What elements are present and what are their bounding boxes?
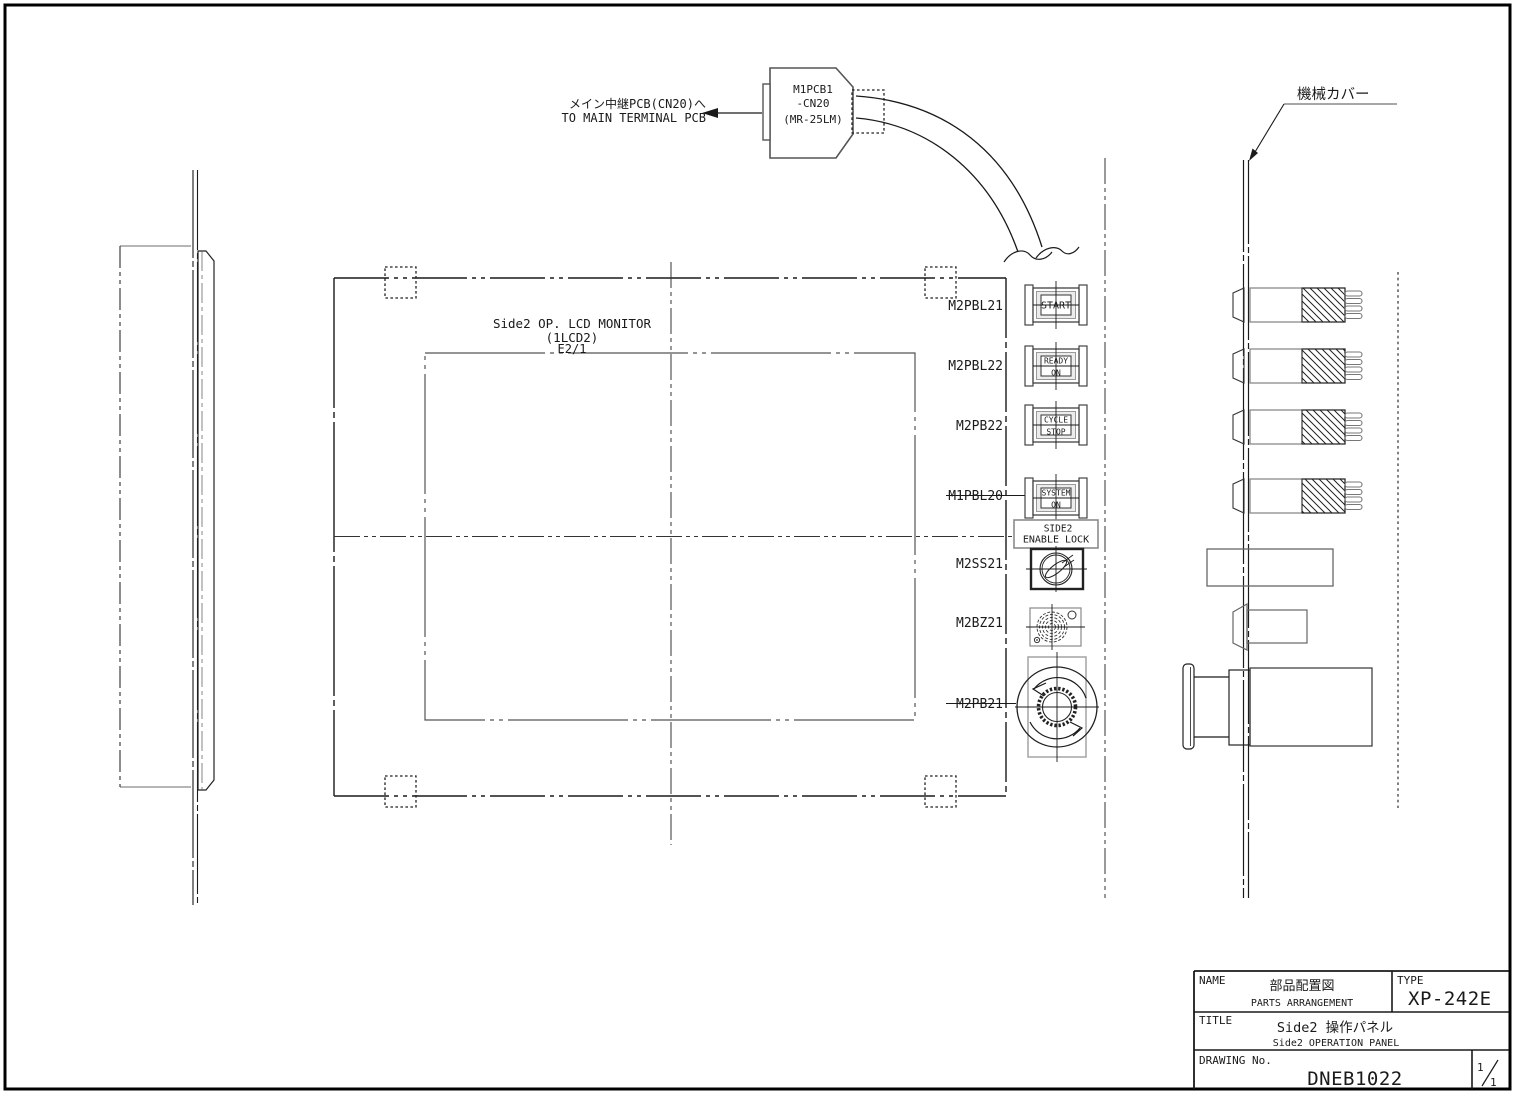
cable-line [856, 118, 1018, 252]
machine-cover-annotation: 機械カバー [1249, 86, 1397, 161]
ref-label-m2pbl22: M2PBL22 [948, 359, 1003, 374]
buzzer [1026, 604, 1085, 650]
mounting-hole [925, 267, 956, 298]
connector-label-1: M1PCB1 [793, 83, 833, 96]
wire-pin [1345, 367, 1362, 372]
button-lens-text: ON [1051, 501, 1061, 510]
sheet-total: 1 [1490, 1076, 1497, 1089]
button-lens-text: CYCLE [1044, 416, 1068, 425]
pushbutton-side-view [1233, 479, 1362, 513]
parts-arrangement-drawing: M1PCB1 -CN20 (MR-25LM) メイン中継PCB(CN20)へ T… [0, 0, 1515, 1094]
terminal-hatch [1302, 349, 1345, 383]
monitor-bezel-side [198, 251, 214, 790]
wire-pin [1345, 497, 1362, 502]
ref-label-m2pbl21: M2PBL21 [948, 299, 1003, 314]
title-label: TITLE [1199, 1014, 1232, 1027]
to-main-pcb-annotation: メイン中継PCB(CN20)へ TO MAIN TERMINAL PCB [562, 96, 763, 125]
plate-text-1: SIDE2 [1044, 524, 1073, 535]
drawing-no-label: DRAWING No. [1199, 1054, 1272, 1067]
title-block: NAME 部品配置図 PARTS ARRANGEMENT TYPE XP-242… [1194, 971, 1509, 1090]
wire-pin [1345, 505, 1362, 510]
type-value: XP-242E [1408, 988, 1492, 1010]
mounting-hole [385, 267, 416, 298]
terminal-hatch [1302, 410, 1345, 444]
button-system-on: SYSTEM ON [1025, 474, 1087, 522]
emergency-stop-button [1015, 652, 1099, 762]
wire-pin [1345, 299, 1362, 304]
ref-label-m1pbl20: M1PBL20 [948, 489, 1003, 504]
wire-pin [1345, 482, 1362, 487]
title-japanese: Side2 操作パネル [1277, 1020, 1393, 1036]
leader-line [1252, 104, 1284, 157]
wire-pin [1345, 428, 1362, 433]
wire-pin [1345, 314, 1362, 319]
connector-tab [763, 84, 770, 140]
ref-label-m2pb22: M2PB22 [956, 419, 1003, 434]
panel-front-view: Side2 OP. LCD MONITOR (1LCD2) E2/1 [334, 262, 1014, 845]
connector-label-3: (MR-25LM) [783, 113, 843, 126]
control-column: M2PBL21 M2PBL22 M2PB22 M1PBL20 M2SS21 M2… [946, 281, 1099, 762]
button-ready-on: READY ON [1025, 342, 1087, 390]
note-japanese: メイン中継PCB(CN20)へ [569, 96, 706, 111]
wire-pin [1345, 421, 1362, 426]
button-lens-text: READY [1044, 357, 1068, 366]
wire-pin [1345, 436, 1362, 441]
wire-pin [1345, 291, 1362, 296]
button-lens-text: ON [1051, 369, 1061, 378]
connector-label-2: -CN20 [796, 97, 829, 110]
ref-label-m2bz21: M2BZ21 [956, 616, 1003, 631]
note-english: TO MAIN TERMINAL PCB [562, 111, 707, 125]
lcd-label-3: E2/1 [558, 342, 587, 356]
estop-mushroom-head [1183, 664, 1194, 749]
cable-break-mark [1004, 251, 1052, 262]
type-label: TYPE [1397, 974, 1424, 987]
estop-body [1250, 668, 1372, 746]
name-japanese: 部品配置図 [1269, 979, 1334, 994]
lcd-label-1: Side2 OP. LCD MONITOR [493, 316, 652, 331]
name-english: PARTS ARRANGEMENT [1251, 998, 1353, 1009]
machine-cover-label: 機械カバー [1297, 86, 1370, 103]
left-side-view [120, 170, 214, 905]
ref-label-m2ss21: M2SS21 [956, 557, 1003, 572]
pushbutton-side-view [1233, 410, 1362, 444]
enable-lock-plate: SIDE2 ENABLE LOCK [1014, 520, 1098, 548]
terminal-hatch [1302, 288, 1345, 322]
button-cycle-stop: CYCLE STOP [1025, 401, 1087, 449]
sheet-fraction: 1 1 [1477, 1060, 1498, 1089]
plate-text-2: ENABLE LOCK [1023, 535, 1089, 546]
drawing-no-value: DNEB1022 [1307, 1068, 1403, 1090]
wire-pin [1345, 306, 1362, 311]
pushbutton-side-view [1233, 288, 1362, 322]
button-lens-text: START [1041, 301, 1071, 312]
mounting-hole [925, 776, 956, 807]
wire-pin [1345, 490, 1362, 495]
wire-pin [1345, 352, 1362, 357]
wire-pin [1345, 360, 1362, 365]
wire-pin [1345, 413, 1362, 418]
title-english: Side2 OPERATION PANEL [1273, 1038, 1399, 1049]
terminal-hatch [1302, 479, 1345, 513]
cable-break-mark [1036, 247, 1079, 258]
mounting-hole [385, 776, 416, 807]
wire-pin [1345, 375, 1362, 380]
estop-side-view [1183, 664, 1372, 749]
name-label: NAME [1199, 974, 1226, 987]
connector-symbol: M1PCB1 -CN20 (MR-25LM) [763, 68, 1079, 262]
key-switch [1026, 546, 1087, 592]
button-start: START [1025, 281, 1087, 329]
button-lens-text: STOP [1046, 428, 1065, 437]
button-lens-text: SYSTEM [1042, 489, 1071, 498]
ref-label-m2pb21: M2PB21 [956, 697, 1003, 712]
right-side-view [1183, 160, 1398, 898]
sheet-number: 1 [1477, 1061, 1484, 1074]
pushbutton-side-view [1233, 349, 1362, 383]
sheet-border [5, 5, 1510, 1089]
key-switch-side-view [1207, 549, 1333, 586]
arrow-icon [1249, 149, 1258, 162]
